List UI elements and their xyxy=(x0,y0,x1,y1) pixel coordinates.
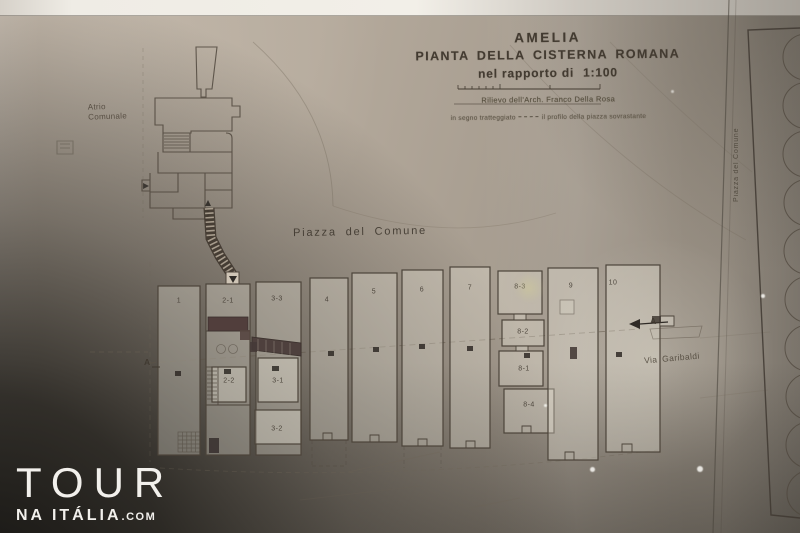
chamber-label-6: 6 xyxy=(420,287,424,294)
plan-credit: Rilievo dell'Arch. Franco Della Rosa xyxy=(398,93,698,105)
chamber-label-3-1: 3-1 xyxy=(272,378,284,385)
chamber-label-10: 10 xyxy=(609,280,618,287)
chamber-label-8-1: 8-1 xyxy=(518,366,530,373)
title-block: AMELIA PIANTA DELLA CISTERNA ROMANA nel … xyxy=(398,28,699,122)
access-ramp xyxy=(209,208,239,284)
cistern-chambers xyxy=(158,265,674,460)
plan-city-title: AMELIA xyxy=(398,28,698,46)
dust-speck xyxy=(544,404,547,407)
section-a-right-label: A xyxy=(650,316,656,326)
watermark-brand: TOUR xyxy=(16,462,174,504)
dust-speck xyxy=(697,466,703,472)
legend-prefix: in segno tratteggiato xyxy=(451,114,516,122)
scale-prefix: nel rapporto di xyxy=(478,66,574,81)
chamber-label-5: 5 xyxy=(372,289,376,296)
legend-suffix: il profilo della piazza sovrastante xyxy=(542,113,647,121)
dust-speck xyxy=(761,294,765,298)
plan-scale-line: nel rapporto di1:100 xyxy=(398,64,698,81)
watermark-sub: NA ITÁLIA.COM xyxy=(16,507,174,525)
dust-speck xyxy=(671,90,674,93)
chamber-label-1: 1 xyxy=(177,298,181,305)
section-a-left-label: A xyxy=(144,357,150,367)
atrio-comunale-label: Atrio Comunale xyxy=(88,101,128,122)
scale-value: 1:100 xyxy=(583,65,618,79)
chamber-label-8-2: 8-2 xyxy=(517,329,529,336)
chamber-label-2-1: 2-1 xyxy=(222,298,234,305)
watermark-suffix: .COM xyxy=(122,511,157,523)
chamber-label-7: 7 xyxy=(468,285,472,292)
atrio-markers xyxy=(143,183,211,206)
framed-cistern-plan-photo: AMELIA PIANTA DELLA CISTERNA ROMANA nel … xyxy=(0,0,800,533)
chamber-label-2-2: 2-2 xyxy=(223,378,235,385)
plan-subtitle: PIANTA DELLA CISTERNA ROMANA xyxy=(398,46,698,63)
chamber-label-9: 9 xyxy=(569,283,573,290)
dust-speck xyxy=(590,467,595,472)
chamber-label-8-3: 8-3 xyxy=(514,284,526,291)
legend-dash-sample xyxy=(519,116,539,117)
piazza-del-comune-vertical-label: Piazza del Comune xyxy=(733,92,740,202)
atrio-comunale-outline xyxy=(57,47,240,219)
chamber-label-4: 4 xyxy=(325,297,329,304)
chamber-label-8-4: 8-4 xyxy=(523,402,535,409)
watermark: TOUR NA ITÁLIA.COM xyxy=(16,462,174,525)
piazza-del-comune-label: Piazza del Comune xyxy=(293,225,427,239)
section-circles-strip xyxy=(783,34,800,517)
chamber-label-3-2: 3-2 xyxy=(271,426,283,433)
chamber-label-3-3: 3-3 xyxy=(271,296,283,303)
